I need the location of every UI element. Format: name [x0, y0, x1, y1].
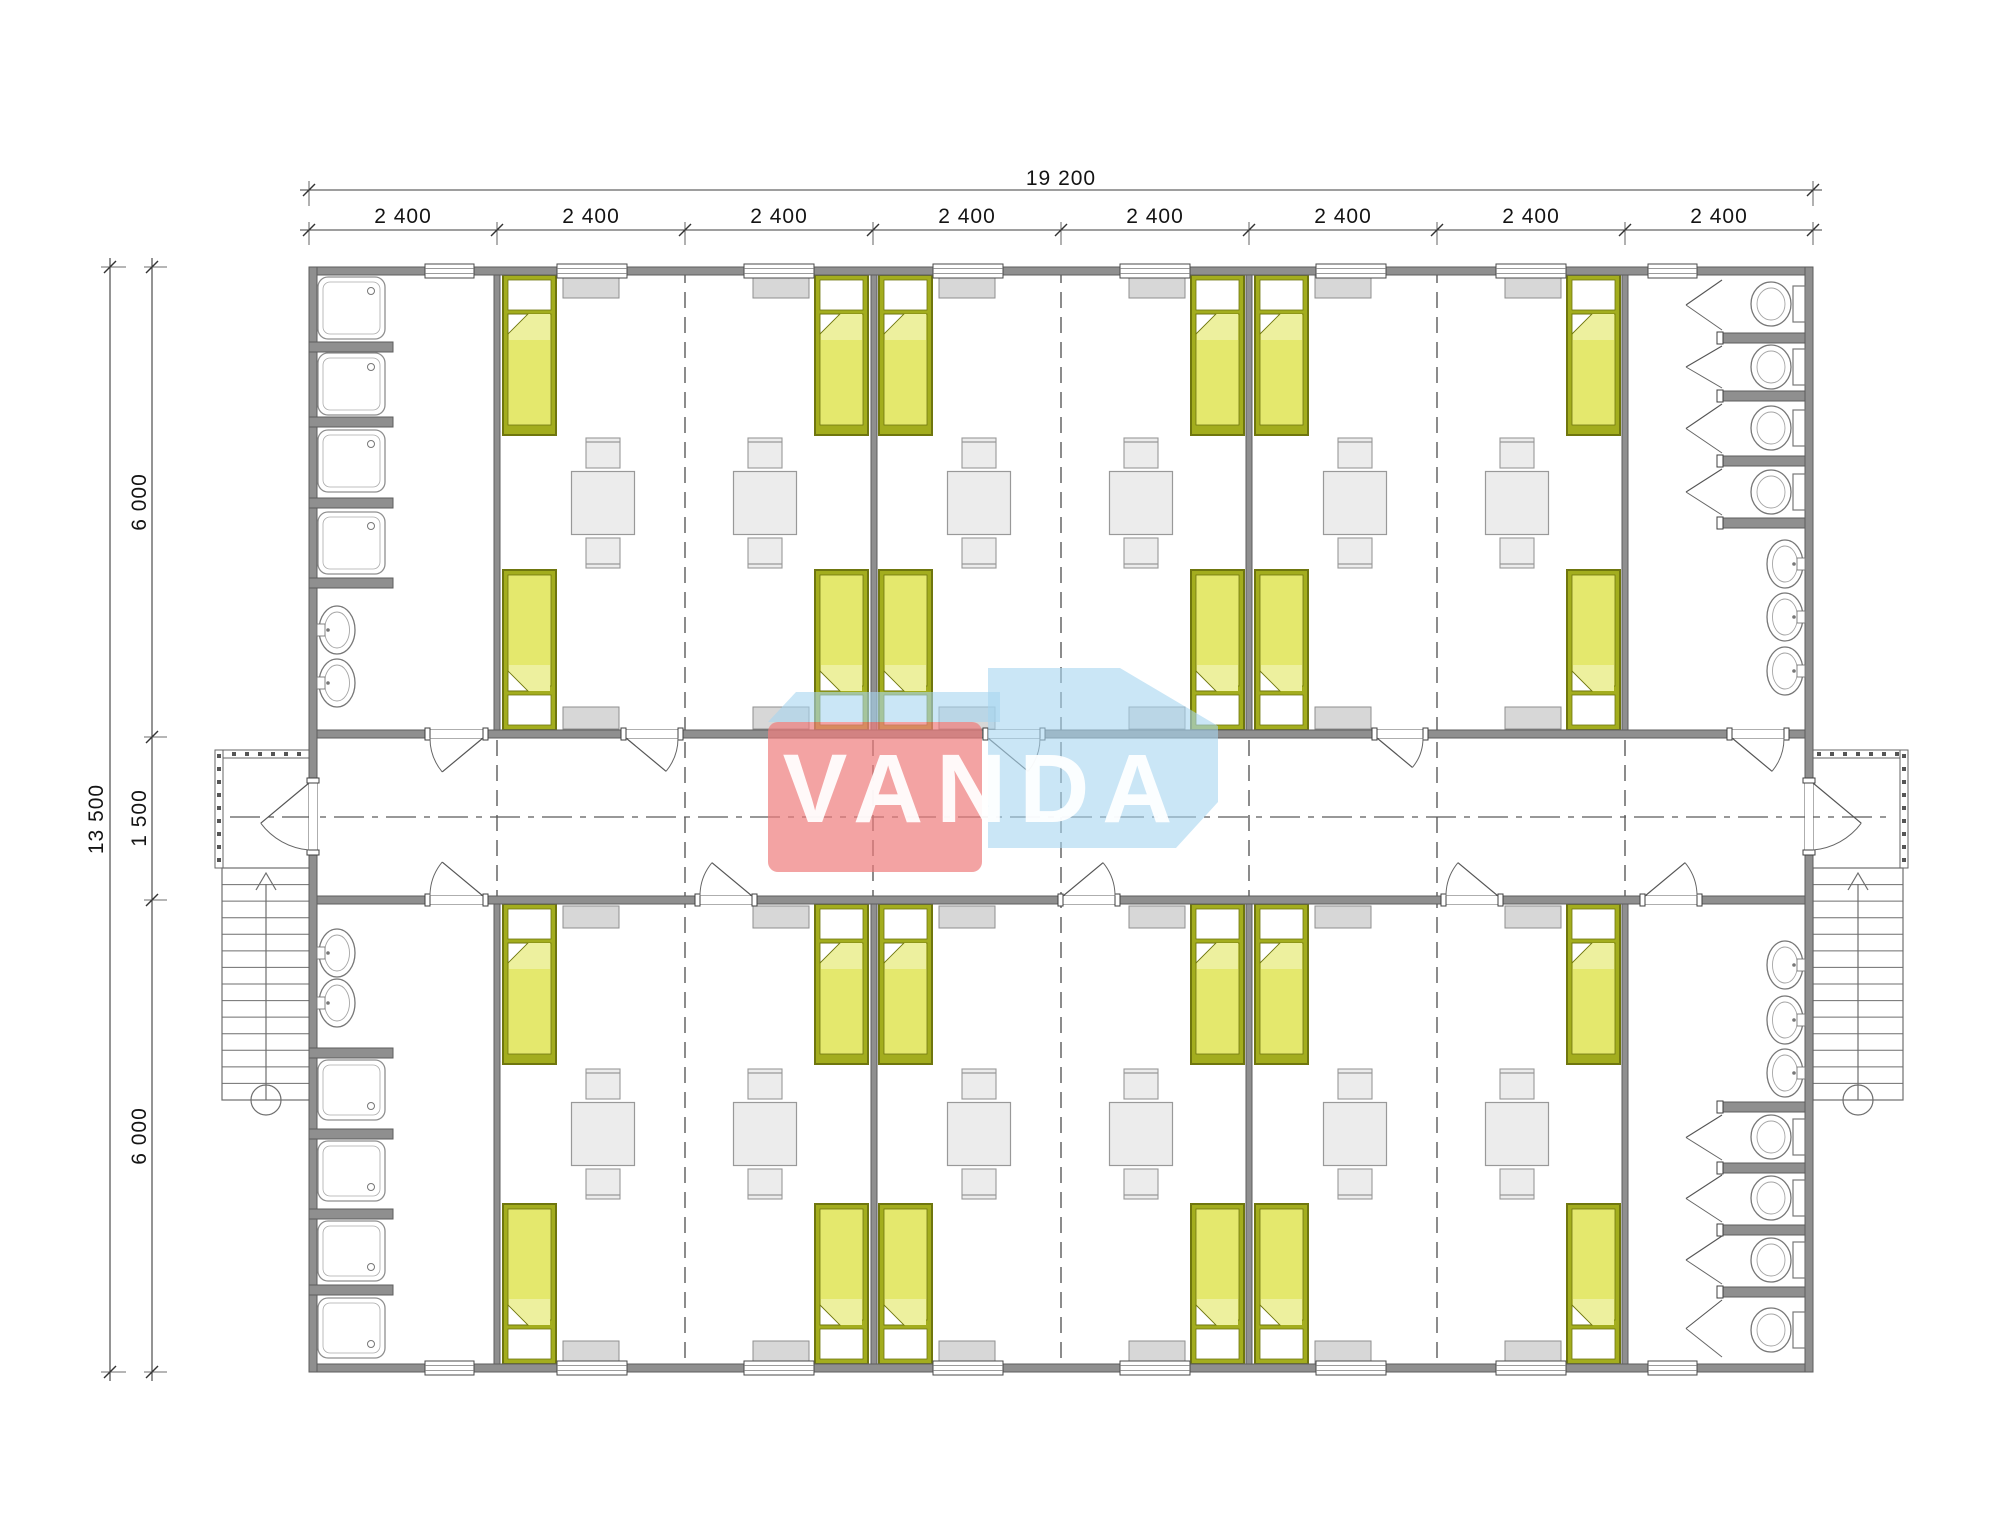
stall-door-leaf: [1686, 1236, 1722, 1260]
door-opening: [1645, 896, 1697, 904]
cabinet: [753, 906, 809, 928]
bed-pillow: [1572, 909, 1615, 939]
sink-tap: [1797, 959, 1805, 971]
railing-post: [217, 793, 221, 797]
wall: [1622, 275, 1628, 730]
railing-post: [1902, 845, 1906, 849]
shower-tray: [318, 1141, 385, 1201]
door-leaf: [1063, 863, 1103, 896]
wall: [871, 904, 877, 1364]
sink-faucet: [1792, 963, 1796, 967]
railing-post: [1817, 752, 1821, 756]
window: [1120, 264, 1190, 278]
table: [1486, 472, 1549, 535]
cabinet: [563, 276, 619, 298]
dimension-segment-label: 1 500: [128, 789, 152, 847]
door-post: [483, 728, 488, 740]
toilet-partition: [1720, 1163, 1805, 1173]
bed-pillow: [884, 280, 927, 310]
railing-post: [217, 858, 221, 862]
door-post: [1717, 517, 1723, 529]
dimension-segment-label: 2 400: [750, 205, 808, 229]
door-post: [1803, 850, 1815, 855]
railing-post: [217, 767, 221, 771]
toilet-partition: [1720, 518, 1805, 528]
window: [1120, 1361, 1190, 1375]
stall-door-swing: [1686, 1329, 1722, 1358]
window: [557, 264, 627, 278]
window: [933, 264, 1003, 278]
railing-post: [1843, 752, 1847, 756]
table: [1110, 1103, 1173, 1166]
door-opening: [430, 896, 483, 904]
stall-door-leaf: [1686, 280, 1722, 305]
door-swing-arc: [261, 823, 309, 850]
toilet-partition: [1720, 1225, 1805, 1235]
shower-drain: [368, 1264, 375, 1271]
sink-tap: [1797, 1067, 1805, 1079]
door-post: [1717, 332, 1723, 344]
door-opening: [1063, 896, 1115, 904]
sink-faucet: [326, 951, 330, 955]
railing-post: [1902, 819, 1906, 823]
door-opening: [1377, 730, 1423, 738]
shower-drain: [368, 1341, 375, 1348]
railing-post: [1902, 780, 1906, 784]
door-leaf: [1377, 738, 1412, 767]
railing-post: [1902, 806, 1906, 810]
sink-tap: [317, 947, 325, 959]
dimension-segment-label: 2 400: [1690, 205, 1748, 229]
shower-drain: [368, 523, 375, 530]
sink-faucet: [1792, 562, 1796, 566]
bed-pillow: [1196, 1329, 1239, 1359]
shower-partition: [309, 1129, 393, 1139]
railing-post: [1869, 752, 1873, 756]
cabinet: [563, 906, 619, 928]
cabinet: [1505, 1341, 1561, 1363]
railing-post: [258, 752, 262, 756]
cabinet: [1315, 276, 1371, 298]
toilet-partition: [1720, 1287, 1805, 1297]
table: [1324, 472, 1387, 535]
door-post: [621, 728, 626, 740]
railing-post: [1856, 752, 1860, 756]
railing-post: [1902, 832, 1906, 836]
door-swing-arc: [1412, 738, 1423, 767]
railing-post: [217, 819, 221, 823]
railing-post: [1902, 793, 1906, 797]
shower-tray: [318, 1221, 385, 1281]
door-post: [483, 894, 488, 906]
shower-partition: [309, 1285, 393, 1295]
railing-post: [297, 752, 301, 756]
door-post: [307, 850, 319, 855]
door-leaf: [1458, 863, 1498, 896]
sink-tap: [1797, 558, 1805, 570]
bed-pillow: [1572, 280, 1615, 310]
door-post: [1803, 778, 1815, 783]
shower-drain: [368, 364, 375, 371]
window: [425, 264, 474, 278]
door-post: [425, 894, 430, 906]
bed-pillow: [1260, 909, 1303, 939]
window: [1496, 264, 1566, 278]
window: [425, 1361, 474, 1375]
window: [744, 264, 814, 278]
table: [948, 472, 1011, 535]
window: [1316, 264, 1386, 278]
sink-tap: [317, 677, 325, 689]
door-leaf: [712, 863, 752, 896]
railing-post: [1830, 752, 1834, 756]
stall-door-leaf: [1686, 1175, 1722, 1199]
railing-post: [232, 752, 236, 756]
toilet-partition: [1720, 391, 1805, 401]
railing-post: [284, 752, 288, 756]
sink-tap: [1797, 665, 1805, 677]
door-opening: [1732, 730, 1784, 738]
dimension-segment-label: 2 400: [1126, 205, 1184, 229]
shower-drain: [368, 1184, 375, 1191]
floor-plan-page: 19 200 2 400 2 400 2 400 2 400 2 400 2 4…: [0, 0, 2000, 1539]
door-swing-arc: [700, 863, 712, 896]
bed-pillow: [884, 909, 927, 939]
cabinet: [1129, 906, 1185, 928]
door-post: [695, 894, 700, 906]
dimension-total-height-label: 13 500: [85, 784, 109, 854]
railing-post: [271, 752, 275, 756]
shower-tray: [318, 1298, 385, 1358]
table: [1110, 472, 1173, 535]
shower-drain: [368, 441, 375, 448]
dimension-segment-label: 2 400: [938, 205, 996, 229]
shower-tray: [318, 353, 385, 415]
window: [744, 1361, 814, 1375]
door-post: [307, 778, 319, 783]
door-swing-arc: [1772, 738, 1784, 771]
window: [1496, 1361, 1566, 1375]
bed-pillow: [1572, 1329, 1615, 1359]
cabinet: [1505, 276, 1561, 298]
window: [557, 1361, 627, 1375]
door-post: [1717, 1101, 1723, 1113]
bed-pillow: [1572, 695, 1615, 725]
window: [1648, 1361, 1697, 1375]
sink-tap: [317, 624, 325, 636]
shower-partition: [309, 498, 393, 508]
toilet-partition: [1720, 1102, 1805, 1112]
bed-pillow: [1196, 280, 1239, 310]
sink-faucet: [326, 1001, 330, 1005]
cabinet: [1129, 276, 1185, 298]
table: [734, 1103, 797, 1166]
wall: [1622, 904, 1628, 1364]
door-post: [1640, 894, 1645, 906]
door-post: [1372, 728, 1377, 740]
wall: [309, 267, 1813, 275]
sink-faucet: [1792, 615, 1796, 619]
shower-tray: [318, 1060, 385, 1120]
door-leaf: [1645, 863, 1685, 896]
cabinet: [1505, 906, 1561, 928]
door-swing-arc: [1685, 863, 1697, 896]
door-swing-arc: [666, 738, 678, 771]
railing-post: [217, 754, 221, 758]
door-leaf: [626, 738, 666, 771]
door-swing-arc: [430, 738, 442, 772]
wall: [494, 904, 500, 1364]
stall-door-leaf: [1686, 1115, 1722, 1138]
sink-faucet: [1792, 1071, 1796, 1075]
window: [1316, 1361, 1386, 1375]
door-leaf: [1813, 783, 1861, 823]
watermark-blue-strip: [768, 692, 1000, 722]
bed-pillow: [1260, 1329, 1303, 1359]
door-post: [1423, 728, 1428, 740]
porch-deck: [1813, 750, 1908, 868]
dimension-segment-label: 2 400: [1314, 205, 1372, 229]
door-post: [1727, 728, 1732, 740]
toilet-tank: [1793, 1312, 1805, 1348]
dimension-segment-label: 2 400: [562, 205, 620, 229]
cabinet: [1315, 906, 1371, 928]
toilet-tank: [1793, 286, 1805, 322]
door-post: [1717, 1286, 1723, 1298]
stall-door-swing: [1686, 1138, 1722, 1161]
railing-post: [217, 806, 221, 810]
cabinet: [939, 1341, 995, 1363]
table: [1486, 1103, 1549, 1166]
toilet-tank: [1793, 410, 1805, 446]
toilet-partition: [1720, 456, 1805, 466]
railing-post: [217, 832, 221, 836]
shower-tray: [318, 430, 385, 492]
table: [1324, 1103, 1387, 1166]
sink-tap: [1797, 611, 1805, 623]
sink-faucet: [326, 681, 330, 685]
cabinet: [939, 906, 995, 928]
stall-door-swing: [1686, 429, 1722, 454]
door-post: [1115, 894, 1120, 906]
window: [1648, 264, 1697, 278]
bed-pillow: [884, 1329, 927, 1359]
stall-door-leaf: [1686, 1300, 1722, 1329]
door-post: [752, 894, 757, 906]
toilet-tank: [1793, 474, 1805, 510]
toilet-tank: [1793, 349, 1805, 385]
wall: [494, 275, 500, 730]
bed-pillow: [820, 909, 863, 939]
dimension-segment-label: 6 000: [128, 473, 152, 531]
sink-tap: [317, 997, 325, 1009]
bed-pillow: [1260, 280, 1303, 310]
table: [572, 1103, 635, 1166]
door-opening: [1805, 783, 1813, 850]
bed-pillow: [508, 1329, 551, 1359]
cabinet: [939, 276, 995, 298]
door-post: [1697, 894, 1702, 906]
door-opening: [700, 896, 752, 904]
cabinet: [1129, 1341, 1185, 1363]
stall-door-leaf: [1686, 404, 1722, 429]
shower-drain: [368, 288, 375, 295]
railing-post: [217, 780, 221, 784]
bed-pillow: [508, 695, 551, 725]
door-swing-arc: [1446, 863, 1458, 896]
cabinet: [753, 1341, 809, 1363]
door-post: [1717, 1224, 1723, 1236]
stall-door-swing: [1686, 492, 1722, 515]
railing-post: [245, 752, 249, 756]
railing-post: [1895, 752, 1899, 756]
bed-pillow: [1260, 695, 1303, 725]
railing-post: [1902, 754, 1906, 758]
door-post: [1441, 894, 1446, 906]
bed-pillow: [820, 280, 863, 310]
bed-pillow: [1196, 909, 1239, 939]
sink-faucet: [1792, 1018, 1796, 1022]
shower-partition: [309, 578, 393, 588]
shower-partition: [309, 417, 393, 427]
door-swing-arc: [1813, 823, 1861, 850]
table: [948, 1103, 1011, 1166]
table: [734, 472, 797, 535]
toilet-tank: [1793, 1180, 1805, 1216]
wall: [1246, 275, 1252, 730]
table: [572, 472, 635, 535]
cabinet: [563, 1341, 619, 1363]
stall-door-swing: [1686, 367, 1722, 388]
door-post: [1784, 728, 1789, 740]
dimension-segment-label: 2 400: [374, 205, 432, 229]
dimension-segment-label: 2 400: [1502, 205, 1560, 229]
door-opening: [1446, 896, 1498, 904]
door-leaf: [442, 738, 483, 772]
toilet-partition: [1720, 333, 1805, 343]
sink-tap: [1797, 1014, 1805, 1026]
shower-partition: [309, 342, 393, 352]
toilet-tank: [1793, 1242, 1805, 1278]
door-leaf: [1732, 738, 1772, 771]
door-post: [1717, 455, 1723, 467]
shower-tray: [318, 277, 385, 339]
door-opening: [430, 730, 483, 738]
cabinet: [1315, 1341, 1371, 1363]
sink-faucet: [1792, 669, 1796, 673]
bed-pillow: [508, 909, 551, 939]
wall: [871, 275, 877, 730]
dimension-segment-label: 6 000: [128, 1107, 152, 1165]
watermark-text: VANDA: [783, 733, 1186, 845]
shower-partition: [309, 1209, 393, 1219]
wall: [309, 1364, 1813, 1372]
stall-door-swing: [1686, 1199, 1722, 1223]
sink-faucet: [326, 628, 330, 632]
shower-drain: [368, 1103, 375, 1110]
railing-post: [1902, 767, 1906, 771]
stall-door-leaf: [1686, 469, 1722, 492]
door-opening: [626, 730, 678, 738]
shower-tray: [318, 512, 385, 574]
cabinet: [563, 707, 619, 729]
door-post: [425, 728, 430, 740]
window: [933, 1361, 1003, 1375]
bed-pillow: [508, 280, 551, 310]
door-post: [1498, 894, 1503, 906]
cabinet: [1505, 707, 1561, 729]
stall-door-swing: [1686, 1260, 1722, 1284]
stall-door-swing: [1686, 305, 1722, 330]
cabinet: [1315, 707, 1371, 729]
door-swing-arc: [430, 862, 442, 896]
door-post: [1058, 894, 1063, 906]
door-post: [1717, 390, 1723, 402]
door-post: [1717, 1162, 1723, 1174]
toilet-tank: [1793, 1119, 1805, 1155]
wall: [1246, 904, 1252, 1364]
railing: [1813, 750, 1908, 758]
railing-post: [1902, 858, 1906, 862]
door-opening: [309, 783, 317, 850]
door-post: [678, 728, 683, 740]
stall-door-leaf: [1686, 346, 1722, 367]
porch-deck: [215, 750, 309, 868]
shower-partition: [309, 1048, 393, 1058]
cabinet: [753, 276, 809, 298]
railing-post: [1882, 752, 1886, 756]
dimension-total-width-label: 19 200: [1026, 167, 1096, 191]
door-leaf: [442, 862, 483, 896]
door-swing-arc: [1103, 863, 1115, 896]
bed-pillow: [820, 1329, 863, 1359]
railing-post: [217, 845, 221, 849]
